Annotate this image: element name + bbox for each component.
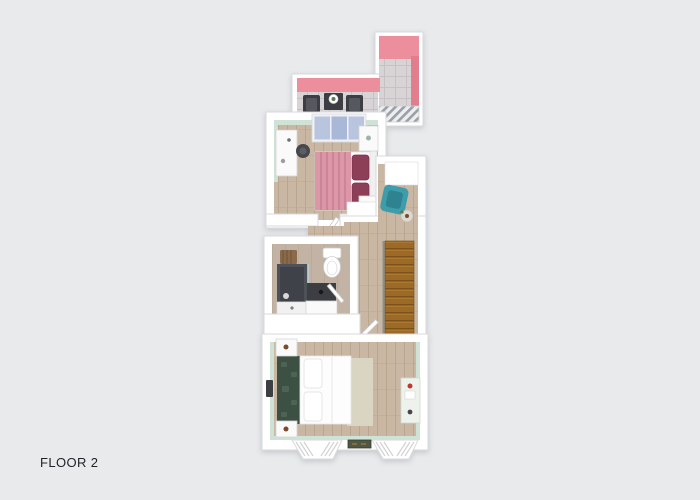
bay-window-left <box>292 440 342 459</box>
bathroom <box>264 236 358 324</box>
white-pillow-top <box>304 359 322 388</box>
bedroom1-nightstand-top <box>359 126 378 151</box>
desk-chair <box>296 144 310 158</box>
floor-label: FLOOR 2 <box>40 455 98 470</box>
bedroom1-south-wall <box>266 214 318 226</box>
laundry-basket <box>280 250 297 264</box>
white-pillow-bottom <box>304 392 322 421</box>
sliding-window <box>312 114 366 142</box>
side-dresser <box>401 378 420 423</box>
bedroom2-nightstand-bottom <box>276 421 297 437</box>
shower <box>277 264 309 315</box>
bay-window-right <box>372 440 418 459</box>
wall-sconce <box>266 380 273 397</box>
toilet <box>323 248 341 278</box>
terrace-pink-wall-east <box>411 56 419 108</box>
doormat <box>348 440 371 448</box>
double-bed-white <box>277 356 351 424</box>
desk <box>276 130 297 176</box>
floorplan-render <box>0 0 700 500</box>
bedroom2-nightstand-top <box>276 339 297 356</box>
patio-chair-right <box>346 95 363 114</box>
maroon-pillow-top <box>352 155 369 180</box>
terrace-pink-wall-north <box>379 36 419 59</box>
floor-plant <box>400 210 413 222</box>
green-headboard <box>277 356 302 424</box>
bedroom-2 <box>262 334 428 459</box>
shower-head <box>283 293 289 299</box>
floorplan-page: FLOOR 2 <box>0 0 700 500</box>
terrace-pink-wall-west <box>297 78 380 92</box>
bedroom1-mint-wall-accent <box>274 120 314 125</box>
patio-chair-left <box>303 95 320 114</box>
wardrobe-closet <box>385 162 418 185</box>
